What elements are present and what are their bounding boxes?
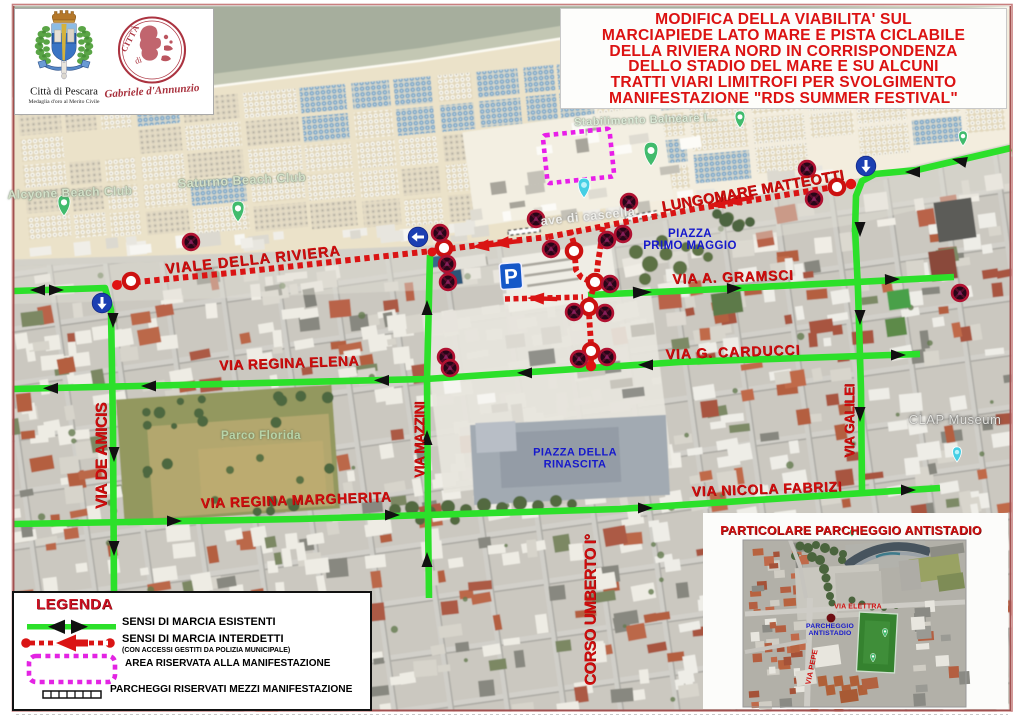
svg-text:P: P	[503, 265, 519, 289]
